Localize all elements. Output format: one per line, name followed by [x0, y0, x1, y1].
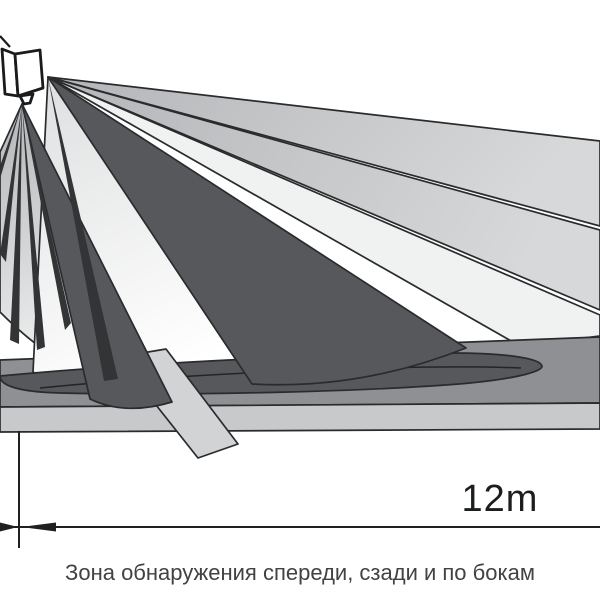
dimension-label: 12m — [440, 478, 560, 521]
dimension-arrow-right — [21, 523, 56, 532]
dimension-arrow-left — [0, 523, 18, 532]
sensor-front-face — [15, 50, 43, 96]
sensor-device — [0, 36, 43, 104]
detection-zone-diagram: 12m Зона обнаружения спереди, сзади и по… — [0, 0, 600, 600]
footprint-light-band — [0, 403, 600, 432]
sensor-neck — [20, 94, 33, 104]
diagram-caption: Зона обнаружения спереди, сзади и по бок… — [0, 560, 600, 586]
sensor-mount-line — [0, 36, 10, 47]
